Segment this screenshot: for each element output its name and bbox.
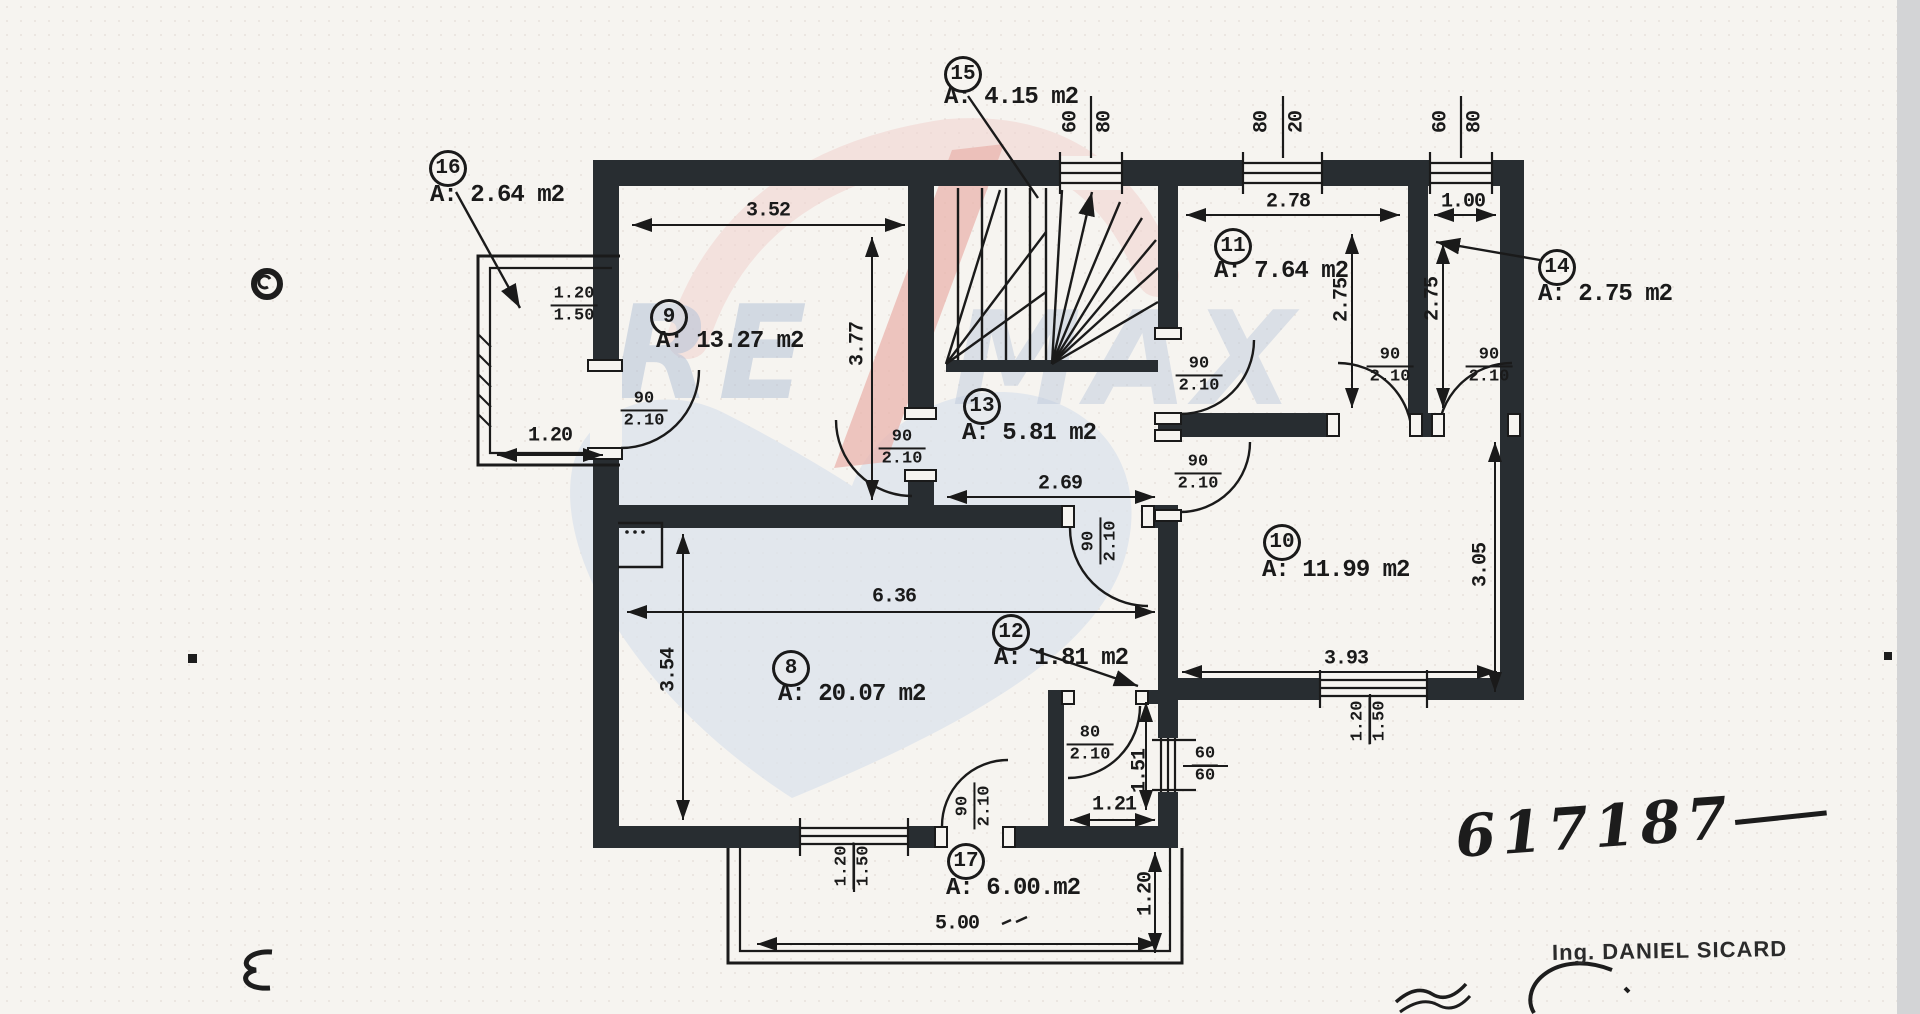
dimension-label: 80 (1464, 111, 1487, 133)
opening-height: 2.10 (879, 449, 926, 469)
dimension-label: 60 (1060, 111, 1083, 133)
opening-size-label: 6060 (1192, 744, 1218, 785)
opening-height: 2.10 (1175, 474, 1222, 494)
dimension-label: 1.20 (1135, 872, 1158, 916)
opening-size-label: 802.10 (1067, 723, 1114, 764)
opening-width: 90 (953, 783, 975, 830)
opening-height: 2.10 (621, 411, 668, 431)
dimension-label: 1.21 (1092, 794, 1136, 817)
room-area-label: A: 4.15 m2 (944, 84, 1078, 111)
opening-width: 1.20 (832, 843, 854, 890)
opening-height: 1.50 (551, 306, 598, 326)
opening-width: 90 (1176, 354, 1223, 376)
opening-width: 80 (1067, 723, 1114, 745)
room-number-badge: 10 (1263, 524, 1301, 561)
opening-height: 2.10 (1176, 376, 1223, 396)
opening-width: 90 (1175, 452, 1222, 474)
opening-size-label: 902.10 (1367, 345, 1414, 386)
room-area-label: A: 2.75 m2 (1538, 281, 1672, 308)
opening-size-label: 902.10 (621, 389, 668, 430)
dimension-label: 5.00 (935, 913, 979, 936)
dimension-label: 3.05 (1470, 543, 1493, 587)
opening-size-label: 902.10 (1176, 354, 1223, 395)
floor-plan-scan: RE MAX (0, 0, 1920, 1014)
dimension-label: 2.78 (1266, 191, 1310, 214)
opening-width: 90 (1466, 345, 1513, 367)
opening-height: 2.10 (1466, 367, 1513, 387)
opening-width: 90 (879, 427, 926, 449)
dimension-label: 6.36 (872, 586, 916, 609)
opening-height: 2.10 (975, 783, 995, 830)
room-area-label: A: 11.99 m2 (1262, 557, 1409, 584)
opening-width: 90 (621, 389, 668, 411)
room-area-label: A: 1.81 m2 (994, 645, 1128, 672)
room-area-label: A: 20.07 m2 (778, 681, 925, 708)
opening-size-label: 902.10 (1079, 518, 1120, 565)
room-area-label: A: 7.64 m2 (1214, 258, 1348, 285)
opening-height: 1.50 (1370, 698, 1390, 745)
handwritten-plan-number: 617187 (1453, 777, 1829, 871)
dimension-label: 20 (1286, 111, 1309, 133)
dimension-label: 1.51 (1129, 749, 1152, 793)
dimension-label: 80 (1251, 111, 1274, 133)
opening-width: 90 (1367, 345, 1414, 367)
dimension-label: 3.52 (746, 200, 790, 223)
opening-width: 60 (1192, 744, 1218, 766)
dimension-label: 3.77 (847, 322, 870, 366)
opening-size-label: 902.10 (953, 783, 994, 830)
opening-width: 1.20 (551, 284, 598, 306)
dimension-label: 2.75 (1422, 277, 1445, 321)
opening-width: 90 (1079, 518, 1101, 565)
room-area-label: A: 6.00.m2 (946, 875, 1080, 902)
room-area-label: A: 5.81 m2 (962, 420, 1096, 447)
opening-height: 2.10 (1101, 518, 1121, 565)
dimension-label: 80 (1094, 111, 1117, 133)
dimension-label: 2.69 (1038, 473, 1082, 496)
dimension-label: 2.75 (1331, 278, 1354, 322)
opening-width: 1.20 (1348, 698, 1370, 745)
opening-height: 60 (1192, 766, 1218, 786)
dimension-label: 60 (1430, 111, 1453, 133)
opening-height: 2.10 (1067, 745, 1114, 765)
opening-height: 2.10 (1367, 367, 1414, 387)
dimension-label: 1.00 (1441, 191, 1485, 214)
dimension-label: 3.93 (1324, 648, 1368, 671)
opening-size-label: 902.10 (879, 427, 926, 468)
opening-size-label: 1.201.50 (551, 284, 598, 325)
room-area-label: A: 13.27 m2 (656, 328, 803, 355)
opening-size-label: 1.201.50 (832, 843, 873, 890)
opening-size-label: 1.201.50 (1348, 698, 1389, 745)
plan-labels-layer: 617187 Ing. DANIEL SICARD 15A: 4.15 m216… (0, 0, 1920, 1014)
opening-size-label: 902.10 (1466, 345, 1513, 386)
opening-height: 1.50 (854, 843, 874, 890)
dimension-label: 1.20 (528, 425, 572, 448)
opening-size-label: 902.10 (1175, 452, 1222, 493)
room-area-label: A: 2.64 m2 (430, 182, 564, 209)
engineer-name: Ing. DANIEL SICARD (1552, 936, 1788, 966)
dimension-label: 3.54 (658, 648, 681, 692)
